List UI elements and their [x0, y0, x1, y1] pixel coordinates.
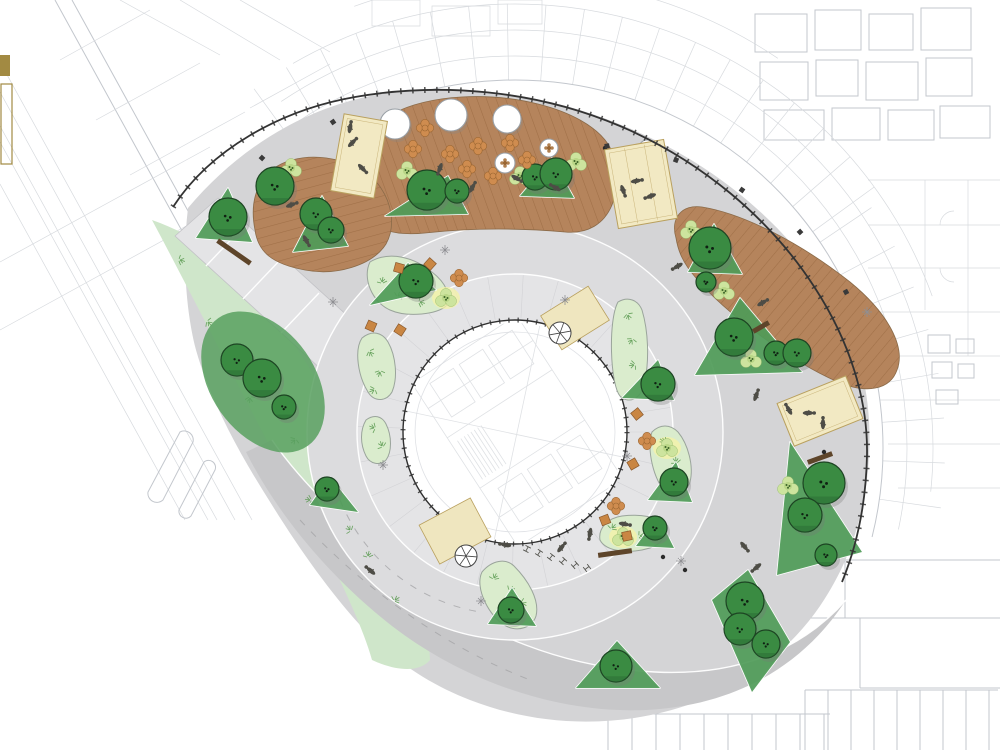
- legend-swatch: [0, 55, 10, 76]
- bed-west-lower: [362, 417, 391, 464]
- cad-topcenter-rooms: [372, 0, 542, 36]
- cad-kitchen-block: [928, 335, 974, 404]
- tower-footprint: [403, 320, 627, 544]
- site-plan-drawing: Circular plaza landscape site plan aroun…: [0, 0, 1000, 750]
- legend-margin: [0, 55, 12, 164]
- cad-topright-block: [755, 8, 990, 140]
- cad-lane-islands: [148, 431, 216, 518]
- site-plan-stage: Circular plaza landscape site plan aroun…: [0, 0, 1000, 750]
- legend-frame: [1, 84, 12, 164]
